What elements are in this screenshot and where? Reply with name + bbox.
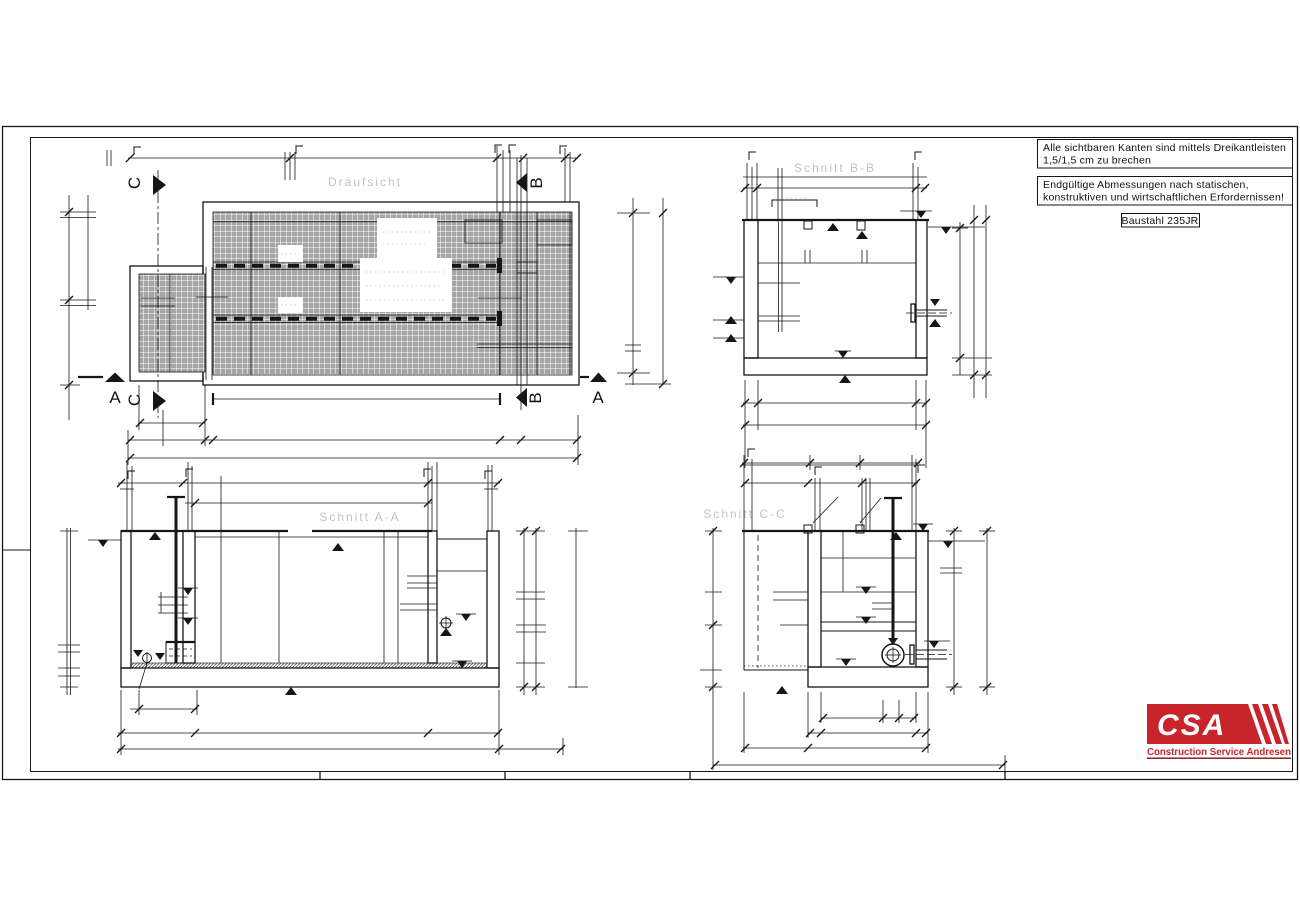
cad-canvas: Alle sichtbaren Kanten sind mittels Drei… <box>0 0 1300 910</box>
anchor-plate <box>804 221 812 229</box>
section-marker-letter: A <box>109 388 121 407</box>
section-bb-title: Schnitt B-B <box>794 161 876 175</box>
section-marker-b-bottom: B <box>516 388 545 407</box>
company-logo: CSA Construction Service Andresen <box>1147 704 1291 759</box>
logo-acronym: CSA <box>1157 709 1226 742</box>
section-marker-letter: C <box>125 394 144 406</box>
section-arrow-icon <box>590 373 607 383</box>
section-marker-b-top: B <box>516 173 546 192</box>
wall-section <box>916 220 927 358</box>
leader-bracket <box>772 200 817 207</box>
section-aa-view: Schnitt A-A <box>58 462 588 755</box>
wall-section <box>121 531 131 668</box>
section-marker-c-bottom: C <box>125 391 166 411</box>
drawing-sheet: Alle sichtbaren Kanten sind mittels Drei… <box>0 0 1300 910</box>
section-arrow-icon <box>153 391 166 411</box>
base-slab-section <box>808 667 928 687</box>
base-slab-section <box>121 668 499 687</box>
screed-layer <box>131 663 487 668</box>
section-arrow-icon <box>516 173 527 192</box>
section-cc-title: Schnitt C-C <box>703 507 786 521</box>
wall-section <box>808 531 821 667</box>
wall-section <box>916 531 928 667</box>
material-note: Baustahl 235JR <box>1122 215 1199 227</box>
logo-underline <box>1147 758 1291 759</box>
pipe-penetration <box>906 299 952 327</box>
wall-section <box>428 531 437 663</box>
pump <box>882 498 904 666</box>
note-1-line-2: 1,5/1,5 cm zu brechen <box>1043 155 1151 167</box>
grating <box>821 622 916 631</box>
notes-block: Alle sichtbaren Kanten sind mittels Drei… <box>1038 140 1293 228</box>
section-arrow-icon <box>153 175 166 195</box>
logo-company-name: Construction Service Andresen <box>1147 747 1291 758</box>
plan-view-title: Draufsicht <box>328 175 402 189</box>
note-2-line-2: konstruktiven und wirtschaftlichen Erfor… <box>1043 192 1284 204</box>
drain-fitting <box>133 650 165 664</box>
plan-view: Draufsicht <box>60 145 671 465</box>
base-slab-section <box>744 358 927 375</box>
section-marker-a-right: A <box>590 373 607 408</box>
section-arrow-icon <box>105 373 125 383</box>
sheet-frame <box>2 127 1298 780</box>
section-marker-letter: C <box>125 177 144 189</box>
section-bb-view: Schnitt B-B <box>713 152 992 470</box>
section-marker-letter: B <box>526 392 545 403</box>
level-marks <box>713 211 985 383</box>
section-aa-title: Schnitt A-A <box>319 510 400 524</box>
note-2-line-1: Endgültige Abmessungen nach statischen, <box>1043 179 1249 191</box>
valve-fitting <box>439 616 453 630</box>
wall-section <box>744 220 758 358</box>
anchor-plate <box>857 221 865 230</box>
section-marker-c-top: C <box>125 175 166 195</box>
section-cc-view: Schnitt C-C <box>700 449 1007 771</box>
wall-section <box>487 531 499 668</box>
note-1-line-1: Alle sichtbaren Kanten sind mittels Drei… <box>1043 142 1286 154</box>
section-marker-letter: B <box>527 177 546 188</box>
section-marker-a-left: A <box>105 373 125 408</box>
section-marker-letter: A <box>592 388 604 407</box>
